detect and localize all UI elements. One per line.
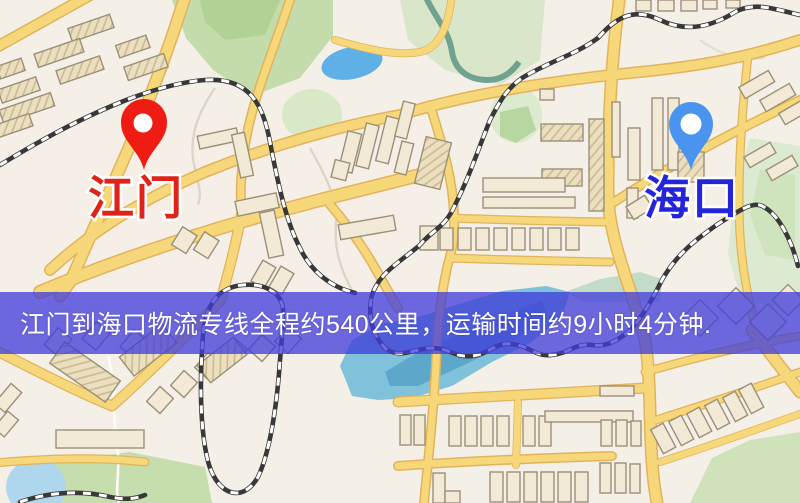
red-map-pin-icon [118,98,170,172]
map-canvas[interactable] [0,0,800,503]
blue-map-pin-icon [666,100,716,172]
route-banner-text: 江门到海口物流专线全程约540公里，运输时间约9小时4分钟. [0,305,711,341]
map-view[interactable]: 江门到海口物流专线全程约540公里，运输时间约9小时4分钟. 江门 海口 [0,0,800,503]
route-banner: 江门到海口物流专线全程约540公里，运输时间约9小时4分钟. [0,292,800,354]
origin-pin[interactable] [118,98,170,177]
destination-pin[interactable] [666,100,716,177]
